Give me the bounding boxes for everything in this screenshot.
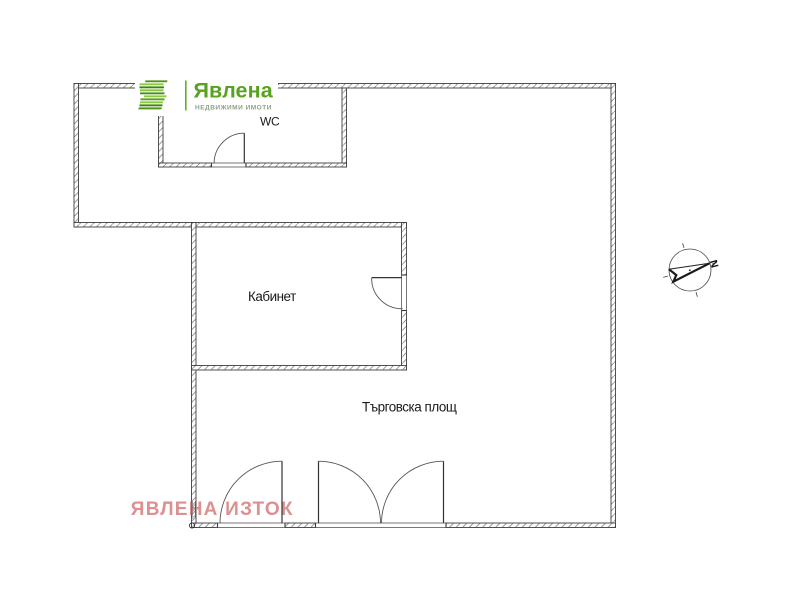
svg-text:НЕДВИЖИМИ ИМОТИ: НЕДВИЖИМИ ИМОТИ: [195, 105, 272, 112]
svg-text:ЯВЛЕНА ИЗТОК: ЯВЛЕНА ИЗТОК: [131, 499, 294, 520]
svg-text:WC: WC: [260, 115, 280, 129]
svg-text:Търговска площ: Търговска площ: [362, 400, 457, 415]
svg-text:Явлена: Явлена: [194, 79, 274, 103]
svg-text:Кабинет: Кабинет: [248, 289, 296, 304]
